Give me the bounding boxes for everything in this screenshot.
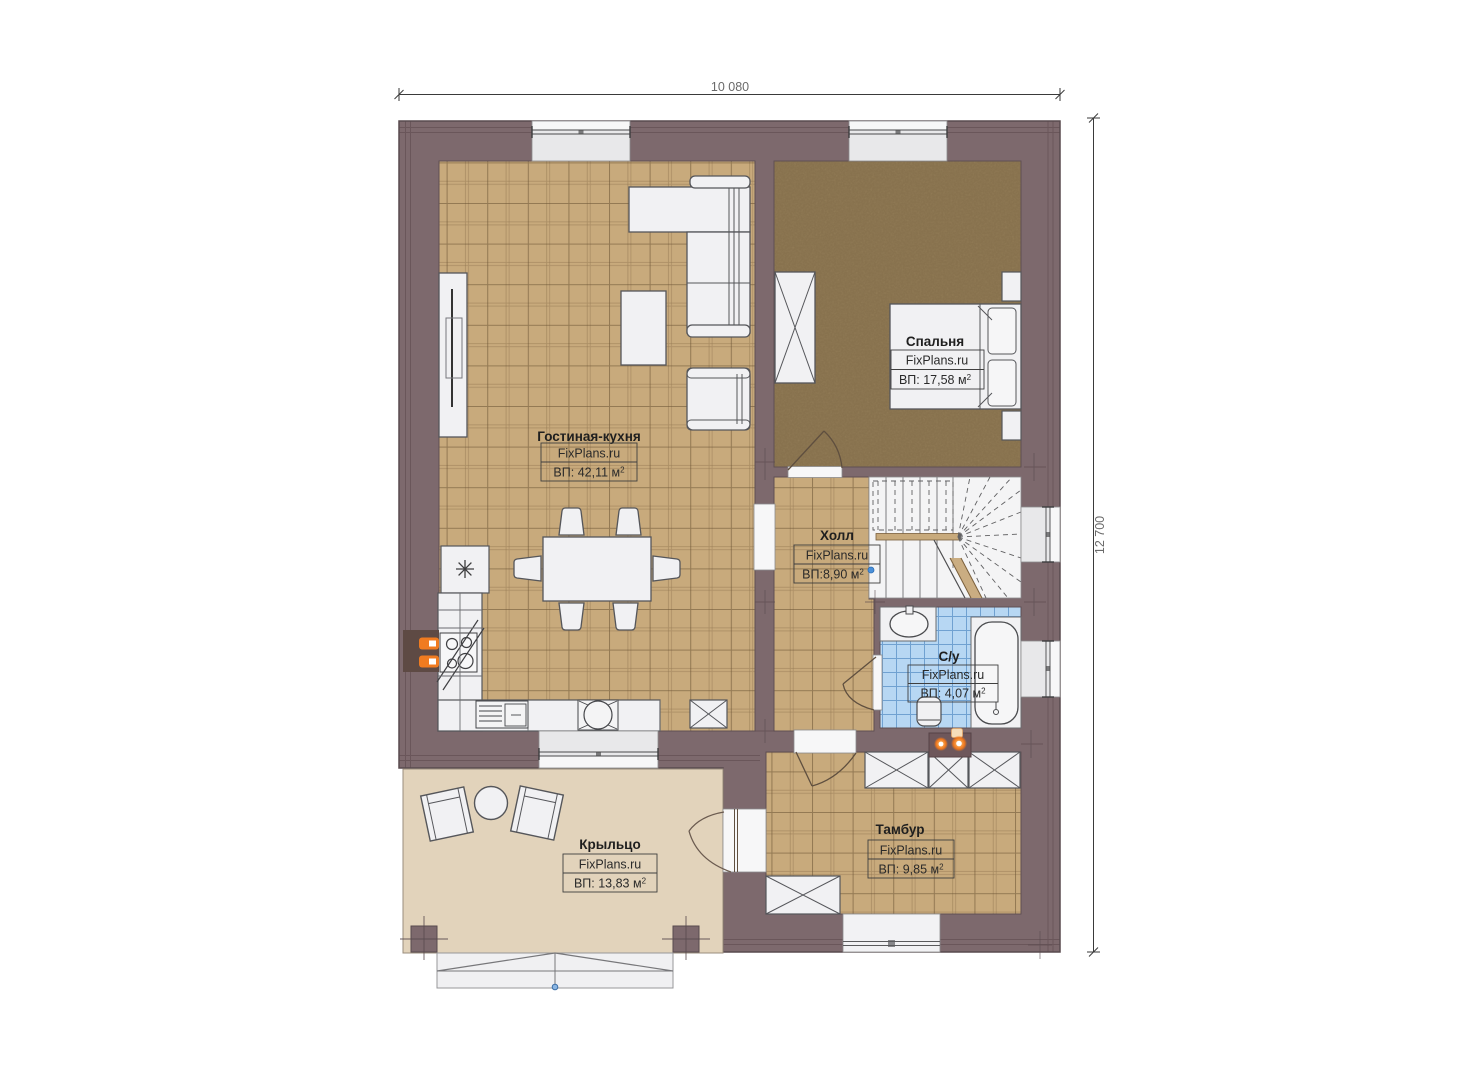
svg-text:ВП: 9,85 м2: ВП: 9,85 м2 — [878, 863, 944, 877]
svg-text:ВП: 17,58 м2: ВП: 17,58 м2 — [899, 373, 972, 387]
svg-text:Крыльцо: Крыльцо — [579, 837, 640, 852]
svg-text:ВП: 4,07 м2: ВП: 4,07 м2 — [920, 687, 986, 701]
svg-text:Гостиная-кухня: Гостиная-кухня — [537, 429, 640, 444]
svg-text:FixPlans.ru: FixPlans.ru — [806, 549, 869, 563]
svg-text:12 700: 12 700 — [1093, 516, 1107, 554]
svg-text:ВП: 42,11 м2: ВП: 42,11 м2 — [553, 466, 625, 480]
svg-text:ВП: 13,83 м2: ВП: 13,83 м2 — [574, 877, 647, 891]
svg-text:Тамбур: Тамбур — [876, 822, 925, 837]
svg-text:FixPlans.ru: FixPlans.ru — [579, 858, 642, 872]
svg-text:ВП:8,90 м2: ВП:8,90 м2 — [802, 568, 864, 582]
svg-text:FixPlans.ru: FixPlans.ru — [906, 354, 969, 368]
svg-text:FixPlans.ru: FixPlans.ru — [558, 447, 621, 461]
svg-text:FixPlans.ru: FixPlans.ru — [880, 844, 943, 858]
svg-text:Холл: Холл — [820, 528, 854, 543]
svg-text:Спальня: Спальня — [906, 334, 964, 349]
svg-text:10 080: 10 080 — [711, 80, 749, 94]
svg-text:FixPlans.ru: FixPlans.ru — [922, 668, 985, 682]
svg-text:С/у: С/у — [938, 649, 960, 664]
